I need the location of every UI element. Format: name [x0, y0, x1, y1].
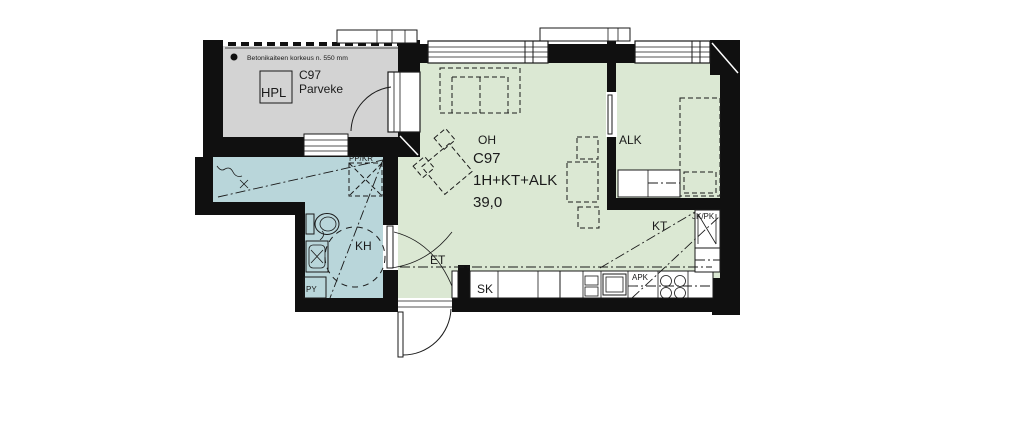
balcony-railing-note: Betonikaiteen korkeus n. 550 mm [247, 55, 348, 62]
balcony-name-label: Parveke [299, 82, 343, 96]
kitchen-label: KT [652, 219, 668, 233]
alcove-divider-wall-lower [607, 137, 616, 208]
living-room-label: OH [478, 133, 496, 147]
dishwasher-label: APK [632, 273, 649, 282]
bathroom-step-wall [195, 202, 305, 215]
alcove-bottom-wall [607, 198, 740, 210]
right-wall [720, 40, 740, 315]
floor-plan-drawing: Betonikaiteen korkeus n. 550 mm C97 Parv… [0, 0, 1024, 445]
floor-plan-canvas: Betonikaiteen korkeus n. 550 mm C97 Parv… [0, 0, 1024, 445]
alcove-divider-wall-upper [607, 40, 616, 92]
washer-dryer-label: PP/KR [349, 154, 373, 163]
hpl-label: HPL [261, 85, 286, 100]
bottom-wall-right [452, 298, 714, 312]
note-bullet [231, 54, 238, 61]
balcony-code-label: C97 [299, 68, 321, 82]
balcony-bench [304, 134, 348, 156]
bottom-wall-left [295, 298, 398, 312]
alcove-cabinet [618, 170, 680, 197]
bathroom-right-wall-lower [383, 270, 398, 302]
exterior-structure-top-left [337, 30, 417, 43]
entry-wall-stub [458, 265, 470, 300]
bottom-right-corner [712, 278, 740, 315]
entry-label: ET [430, 253, 446, 267]
cleaning-closet-label: SK [477, 282, 493, 296]
alcove-label: ALK [619, 133, 642, 147]
alcove-door [606, 92, 617, 137]
exterior-structure-top-mid [540, 28, 630, 41]
fridge-freezer-label: JK/PK [692, 212, 715, 221]
alcove-window [635, 41, 710, 63]
bathroom-label: KH [355, 239, 372, 253]
balcony-divider-wall-upper [398, 40, 420, 72]
top-wall-a [420, 44, 428, 63]
living-room-window [428, 41, 548, 63]
entry-door [398, 301, 452, 357]
top-wall-b [548, 44, 635, 63]
apartment-layout-label: 1H+KT+ALK [473, 172, 557, 189]
laundry-label: PY [306, 285, 317, 294]
apartment-code-label: C97 [473, 150, 501, 167]
bathroom-right-wall-upper [383, 157, 398, 225]
apartment-area-label: 39,0 [473, 194, 502, 211]
kitchen-cabinets [470, 271, 713, 298]
